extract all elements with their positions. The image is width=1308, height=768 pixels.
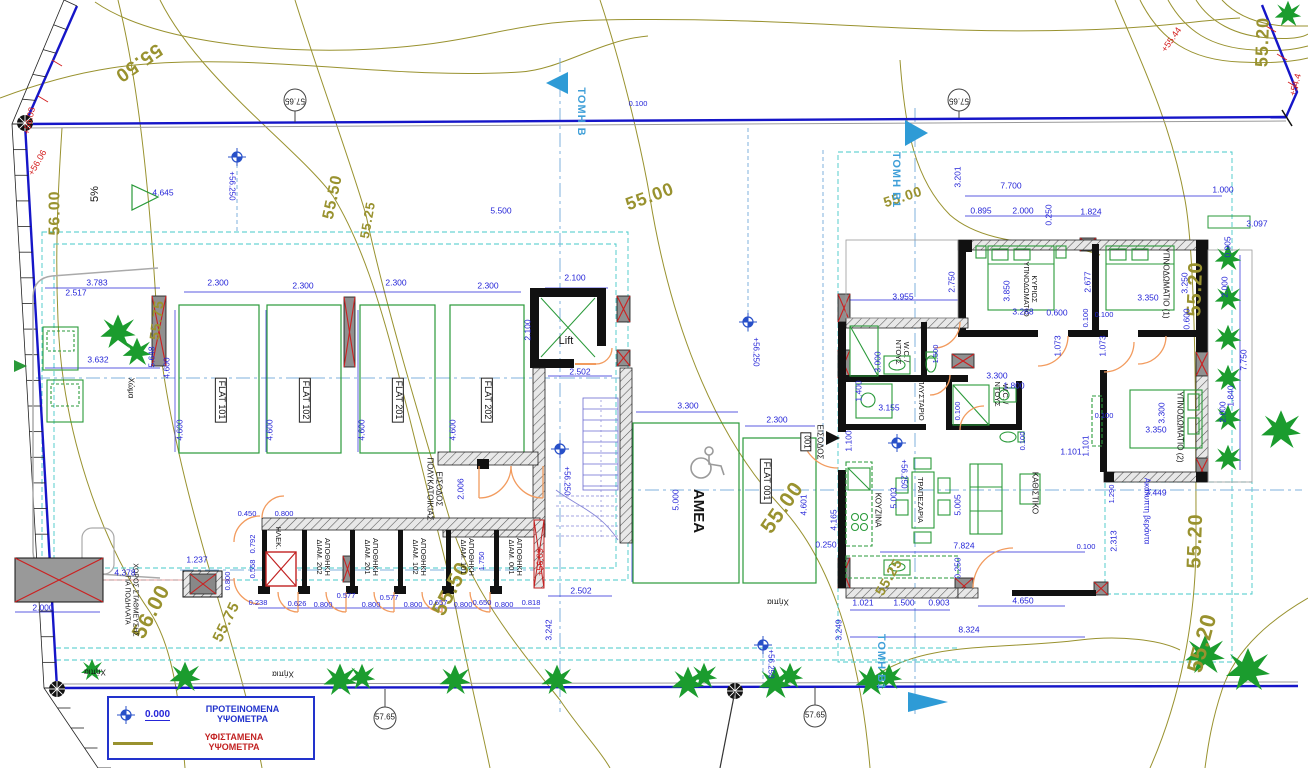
furniture <box>846 246 1202 578</box>
legend-proposed-value: 0.000 <box>145 709 170 721</box>
legend-proposed-label: ΠΡΟΤΕΙΝΟΜΕΝΑ ΥΨΟΜΕΤΡΑ <box>176 705 309 725</box>
manholes <box>17 115 743 768</box>
section-markers <box>546 72 948 712</box>
contour-lines <box>0 0 1308 768</box>
legend-box: 0.000 ΠΡΟΤΕΙΝΟΜΕΝΑ ΥΨΟΜΕΤΡΑ ΥΦΙΣΤΑΜΕΝΑ Υ… <box>107 696 315 760</box>
benchmark-legend-icon <box>113 705 139 725</box>
floor-plan-canvas: 55.5055.5055.2555.0056.0055.7556.0055.75… <box>0 0 1308 768</box>
storage-block <box>258 518 544 594</box>
stairwell <box>533 368 632 543</box>
lift-core <box>530 288 606 368</box>
level-benchmarks <box>228 148 906 654</box>
entrance-arrow-icon <box>826 431 840 445</box>
legend-existing-swatch <box>113 742 153 745</box>
plan-geometry <box>0 0 1308 768</box>
house-walls <box>838 216 1252 598</box>
centerlines <box>36 58 1302 714</box>
doors <box>234 322 1166 612</box>
wheelchair-icon <box>691 447 724 478</box>
setback-lines <box>42 152 1252 662</box>
legend-existing-label: ΥΦΙΣΤΑΜΕΝΑ ΥΨΟΜΕΤΡΑ <box>159 733 309 753</box>
